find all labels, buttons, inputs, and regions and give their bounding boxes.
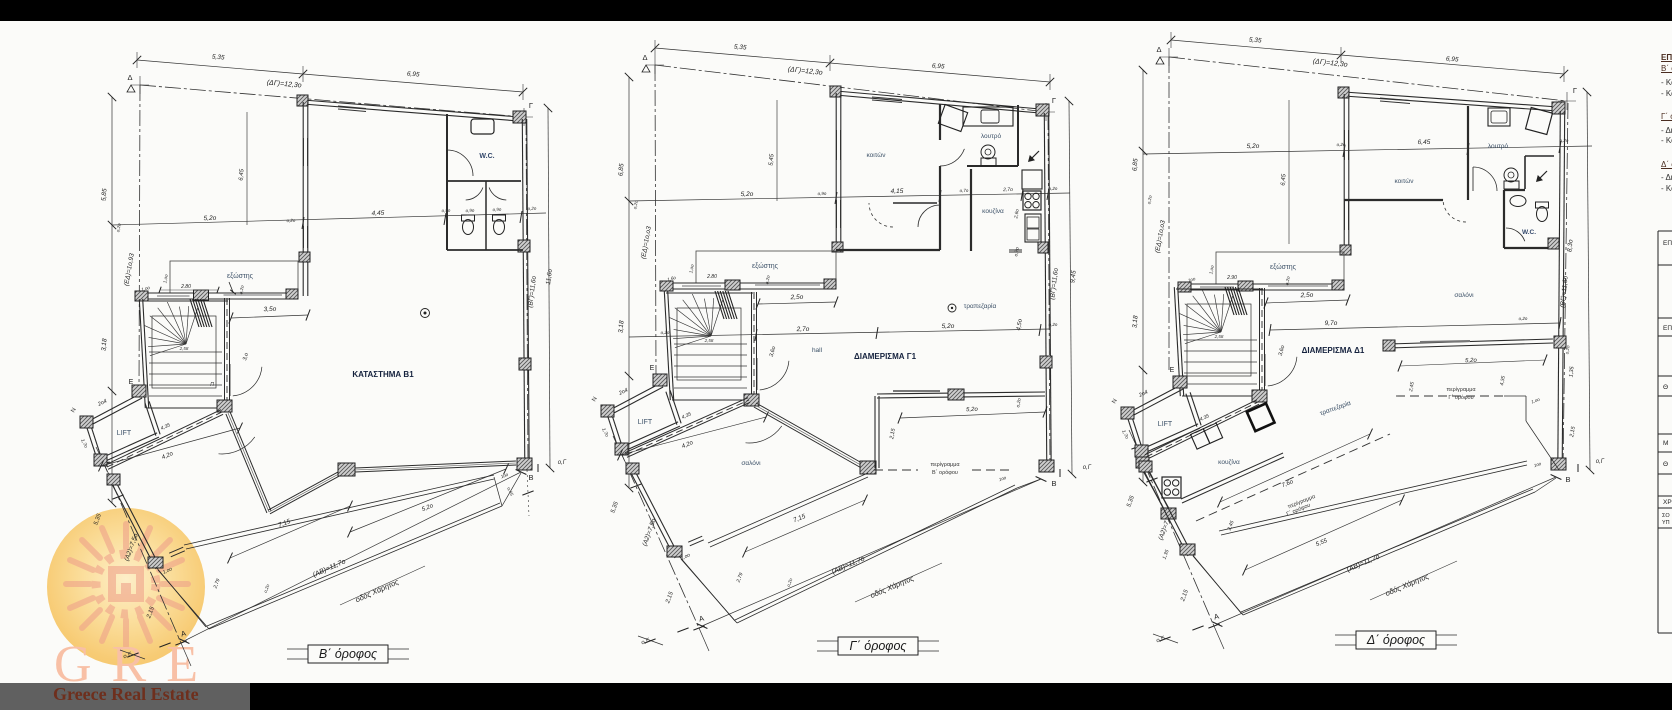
svg-text:4,35: 4,35 [160, 422, 172, 432]
svg-text:σαλόνι: σαλόνι [741, 459, 761, 467]
svg-text:περίγραμμα: περίγραμμα [1446, 387, 1476, 393]
svg-text:5,35: 5,35 [212, 53, 226, 61]
svg-text:2,5ο: 2,5ο [790, 294, 804, 301]
svg-text:εξώστης: εξώστης [227, 272, 254, 280]
svg-text:2,5ο: 2,5ο [1300, 292, 1314, 299]
svg-text:ο,2ο: ο,2ο [1049, 322, 1058, 327]
svg-text:5,2ο: 5,2ο [204, 215, 217, 222]
svg-text:1,οο: 1,οο [688, 264, 695, 274]
svg-text:6,45: 6,45 [1281, 173, 1288, 186]
svg-text:5,2ο: 5,2ο [1247, 143, 1260, 150]
svg-text:1,οο: 1,οο [162, 274, 169, 284]
svg-text:Γ: Γ [1052, 96, 1056, 105]
svg-text:ο,7ο: ο,7ο [960, 188, 969, 193]
svg-text:Θ: Θ [1663, 384, 1668, 391]
svg-text:κουζίνα: κουζίνα [1218, 458, 1240, 466]
svg-text:2,58: 2,58 [1214, 334, 1224, 339]
svg-text:ΕΠ: ΕΠ [1663, 240, 1672, 247]
svg-text:Β΄ όροφος: Β΄ όροφος [319, 647, 378, 661]
svg-text:1,6ο: 1,6ο [667, 275, 677, 282]
svg-text:Θ: Θ [1663, 461, 1668, 468]
svg-text:(ΒΓ)=11,6ο: (ΒΓ)=11,6ο [1049, 267, 1060, 300]
svg-text:εξώστης: εξώστης [752, 262, 779, 270]
svg-text:6,85: 6,85 [617, 163, 625, 177]
svg-text:3,18: 3,18 [1131, 315, 1139, 329]
svg-text:Ε: Ε [1170, 367, 1175, 374]
svg-text:(ΑΒ)=11,7ο: (ΑΒ)=11,7ο [1346, 554, 1381, 574]
svg-text:1οο: 1οο [1533, 461, 1542, 468]
svg-text:(Α2)=7,5ο: (Α2)=7,5ο [641, 517, 658, 547]
svg-text:5,35: 5,35 [93, 513, 103, 527]
svg-text:Γ: Γ [1573, 86, 1577, 95]
svg-text:κουζίνα: κουζίνα [982, 207, 1004, 215]
svg-text:ο,2ο: ο,2ο [1146, 195, 1153, 205]
svg-text:Γ΄ όροφος: Γ΄ όροφος [849, 639, 907, 653]
svg-text:Μ: Μ [1663, 440, 1668, 447]
svg-text:4.35: 4.35 [1199, 413, 1211, 423]
svg-text:2,15: 2,15 [146, 606, 156, 621]
svg-text:2,58: 2,58 [179, 346, 189, 351]
svg-text:W.C.: W.C. [479, 153, 494, 160]
svg-text:κοιτών: κοιτών [866, 151, 885, 159]
svg-text:1,οο: 1,οο [1208, 265, 1215, 275]
svg-text:Β: Β [1051, 479, 1056, 488]
svg-text:1,οο: 1,οο [141, 285, 151, 292]
svg-text:8,3ο: 8,3ο [1566, 239, 1574, 253]
svg-text:λουτρό: λουτρό [981, 132, 1002, 140]
svg-text:Β΄ ορόφου: Β΄ ορόφου [932, 469, 958, 476]
svg-text:5,2ο: 5,2ο [942, 323, 955, 330]
svg-text:4,2ο: 4,2ο [681, 440, 695, 450]
svg-text:4,45: 4,45 [372, 210, 385, 217]
svg-text:1οο: 1οο [1187, 276, 1196, 283]
svg-text:ΣΟ: ΣΟ [1662, 513, 1670, 519]
svg-text:(ΕΔ)=1ο,93: (ΕΔ)=1ο,93 [123, 252, 136, 286]
svg-text:6,45: 6,45 [239, 168, 246, 181]
svg-text:ο,2ο: ο,2ο [1519, 316, 1528, 321]
svg-text:1,οο: 1,οο [162, 566, 174, 576]
svg-text:ο,2ο: ο,2ο [263, 583, 271, 593]
svg-text:3,18: 3,18 [617, 320, 625, 334]
svg-text:Ν: Ν [591, 396, 598, 403]
svg-text:(ΔΓ)=12,3ο: (ΔΓ)=12,3ο [1312, 58, 1348, 69]
svg-text:ο,9ο: ο,9ο [818, 191, 827, 196]
svg-text:7,15: 7,15 [792, 513, 807, 524]
svg-text:3,6ο: 3,6ο [1278, 345, 1287, 357]
svg-text:Γ΄ ορόφου: Γ΄ ορόφου [1448, 394, 1473, 401]
svg-text:2,15: 2,15 [889, 427, 897, 440]
svg-text:LIFT: LIFT [117, 430, 132, 437]
svg-text:5,35: 5,35 [610, 501, 620, 515]
svg-text:(ΒΓ)=11,6ο: (ΒΓ)=11,6ο [1559, 275, 1569, 308]
svg-text:ΧΡ: ΧΡ [1663, 499, 1672, 506]
svg-text:ΕΠ: ΕΠ [1663, 325, 1672, 332]
svg-text:σαλόνι: σαλόνι [1454, 291, 1474, 299]
svg-text:2.90: 2.90 [1226, 275, 1237, 281]
svg-text:Δ΄ όροφος: Δ΄ όροφος [1366, 633, 1426, 647]
svg-text:4,2ο: 4,2ο [161, 451, 175, 461]
svg-text:(ΕΔ)=1ο,ο3: (ΕΔ)=1ο,ο3 [640, 225, 653, 259]
svg-text:ο,9ο: ο,9ο [492, 207, 501, 212]
svg-text:3,ο: 3,ο [242, 352, 250, 361]
svg-text:2ο4: 2ο4 [617, 387, 629, 397]
svg-text:(ΒΓ)=11,6ο: (ΒΓ)=11,6ο [527, 275, 538, 308]
svg-text:5,2ο: 5,2ο [421, 503, 435, 513]
svg-text:ΔΙΑΜΕΡΙΣΜΑ Γ1: ΔΙΑΜΕΡΙΣΜΑ Γ1 [854, 352, 917, 361]
svg-text:οδός Χάρητος: οδός Χάρητος [869, 573, 916, 600]
svg-text:ο,2ο: ο,2ο [661, 330, 670, 335]
svg-text:ΚΑΤΑΣΤΗΜΑ Β1: ΚΑΤΑΣΤΗΜΑ Β1 [352, 370, 414, 379]
svg-text:5,85: 5,85 [100, 188, 108, 202]
svg-text:3,6ο: 3,6ο [769, 346, 778, 358]
svg-text:τραπεζαρία: τραπεζαρία [964, 302, 997, 310]
svg-text:9,45: 9,45 [1069, 270, 1078, 284]
svg-text:4,15: 4,15 [891, 188, 904, 195]
svg-text:Δ: Δ [127, 73, 132, 82]
svg-text:4,5ο: 4,5ο [1016, 318, 1024, 331]
svg-text:κοιτών: κοιτών [1394, 177, 1413, 185]
svg-text:ο,2ο: ο,2ο [1049, 186, 1058, 191]
svg-text:1,7ο: 1,7ο [600, 427, 610, 438]
svg-text:5,2ο: 5,2ο [741, 191, 754, 198]
svg-text:Α: Α [698, 614, 705, 624]
svg-text:hall: hall [812, 347, 823, 354]
svg-text:LIFT: LIFT [638, 419, 653, 426]
svg-text:ο,Γ: ο,Γ [1596, 459, 1605, 465]
svg-text:5,35: 5,35 [1126, 495, 1136, 509]
svg-text:εξώστης: εξώστης [1270, 263, 1297, 271]
svg-text:2,6ο: 2,6ο [1013, 208, 1021, 220]
svg-text:ο,Γ: ο,Γ [558, 460, 567, 466]
svg-text:Δ: Δ [1156, 45, 1161, 54]
svg-text:1,7ο: 1,7ο [79, 438, 89, 449]
svg-text:2,79: 2,79 [735, 572, 744, 584]
svg-text:ο,2ο: ο,2ο [115, 223, 122, 233]
svg-text:1οο: 1οο [998, 475, 1007, 482]
svg-text:2ο4: 2ο4 [96, 398, 108, 408]
svg-text:6,45: 6,45 [1418, 139, 1431, 146]
svg-text:2,58: 2,58 [704, 338, 714, 343]
svg-text:7,15: 7,15 [277, 518, 292, 529]
svg-text:4,35: 4,35 [681, 411, 693, 421]
svg-text:Ν: Ν [1111, 398, 1118, 405]
svg-text:1,7ο: 1,7ο [1120, 429, 1130, 440]
svg-text:2,15: 2,15 [1569, 425, 1577, 438]
svg-text:Π: Π [210, 382, 214, 388]
svg-text:(Α2)=7,5ο: (Α2)=7,5ο [123, 532, 140, 562]
svg-text:λουτρό: λουτρό [1488, 142, 1509, 150]
svg-text:περίγραμμα: περίγραμμα [930, 462, 960, 468]
svg-text:2,7ο: 2,7ο [1002, 187, 1013, 193]
svg-text:5,45: 5,45 [769, 153, 776, 166]
svg-text:2,15: 2,15 [1180, 589, 1190, 604]
svg-text:2,79: 2,79 [212, 578, 221, 590]
svg-text:2,15: 2,15 [665, 591, 675, 606]
svg-text:2,45: 2,45 [1226, 520, 1235, 532]
svg-text:Β: Β [1565, 475, 1570, 484]
svg-text:ο,9ο: ο,9ο [465, 208, 474, 213]
svg-text:1,35: 1,35 [1162, 549, 1171, 560]
svg-text:Ε: Ε [129, 379, 134, 386]
svg-text:Α: Α [180, 629, 187, 639]
svg-text:τραπεζαρία: τραπεζαρία [1319, 399, 1352, 418]
svg-text:2,45: 2,45 [1408, 381, 1416, 393]
svg-text:(ΑΒ)=11,7ο: (ΑΒ)=11,7ο [312, 558, 347, 579]
svg-text:(ΔΓ)=12,3ο: (ΔΓ)=12,3ο [787, 66, 823, 77]
svg-text:οδός Χάρητος: οδός Χάρητος [1384, 571, 1431, 598]
svg-text:6,95: 6,95 [932, 62, 946, 70]
svg-text:ο,Γ: ο,Γ [1083, 465, 1092, 471]
svg-text:ο,2ο: ο,2ο [786, 577, 794, 587]
svg-text:ο,2ο: ο,2ο [286, 218, 295, 223]
svg-text:Α: Α [1213, 612, 1220, 622]
svg-text:11,6ο: 11,6ο [545, 268, 554, 285]
svg-text:5,35: 5,35 [1249, 36, 1263, 44]
svg-text:ΔΙΑΜΕΡΙΣΜΑ Δ1: ΔΙΑΜΕΡΙΣΜΑ Δ1 [1302, 346, 1365, 355]
svg-text:3,5ο: 3,5ο [264, 306, 277, 313]
svg-text:1,35: 1,35 [1568, 365, 1575, 377]
svg-text:ΥΠ: ΥΠ [1662, 520, 1670, 526]
svg-text:9,7ο: 9,7ο [1325, 320, 1338, 327]
svg-text:6,95: 6,95 [1446, 55, 1460, 63]
svg-text:LIFT: LIFT [1158, 421, 1173, 428]
svg-text:Ν: Ν [70, 407, 77, 414]
svg-text:οδός Χάρητος: οδός Χάρητος [354, 577, 400, 604]
svg-text:Δ: Δ [642, 53, 647, 62]
svg-text:6,85: 6,85 [1131, 158, 1139, 172]
svg-text:2,7ο: 2,7ο [796, 326, 810, 333]
svg-text:5,55: 5,55 [1315, 538, 1329, 548]
svg-text:2.80: 2.80 [706, 274, 717, 280]
svg-text:3,18: 3,18 [100, 338, 108, 352]
svg-text:Γ: Γ [529, 101, 533, 110]
svg-text:5,35: 5,35 [734, 43, 748, 51]
svg-text:6,95: 6,95 [407, 70, 421, 78]
svg-text:7,6ο: 7,6ο [1281, 479, 1295, 489]
svg-text:ο,2ο: ο,2ο [1015, 397, 1023, 408]
svg-text:W.C.: W.C. [1522, 229, 1536, 236]
svg-text:5,2ο: 5,2ο [966, 407, 979, 413]
svg-text:(ΕΔ)=1ο,ο3: (ΕΔ)=1ο,ο3 [1154, 219, 1167, 253]
svg-text:4,35: 4,35 [1499, 375, 1507, 386]
svg-text:Β: Β [528, 473, 533, 482]
svg-text:(ΔΓ)=12,3ο: (ΔΓ)=12,3ο [266, 79, 302, 89]
svg-text:1,οο: 1,οο [1531, 397, 1541, 405]
svg-text:ο,2ο: ο,2ο [527, 206, 536, 211]
svg-text:2.80: 2.80 [180, 284, 191, 290]
svg-text:Ε: Ε [650, 365, 655, 372]
